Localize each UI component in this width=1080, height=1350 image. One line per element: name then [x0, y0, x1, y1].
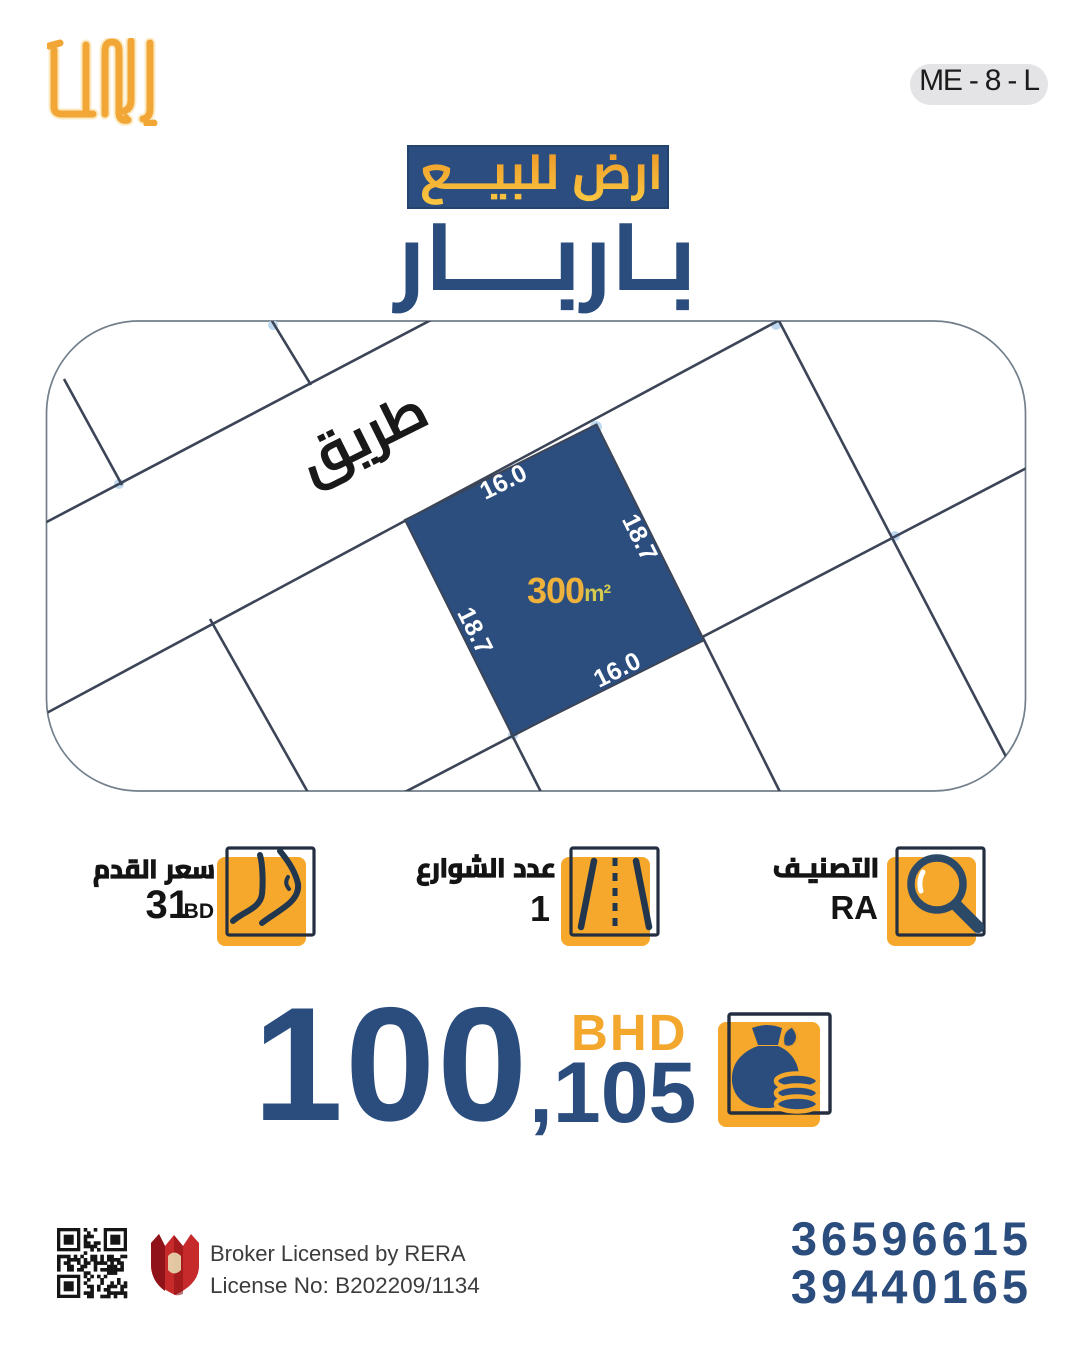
svg-text:36596615: 36596615 — [791, 1212, 1032, 1265]
svg-text:Broker Licensed by RERA: Broker Licensed by RERA — [210, 1241, 466, 1266]
svg-text:39440165: 39440165 — [791, 1260, 1032, 1313]
svg-text:License No: B202209/1134: License No: B202209/1134 — [210, 1273, 480, 1298]
